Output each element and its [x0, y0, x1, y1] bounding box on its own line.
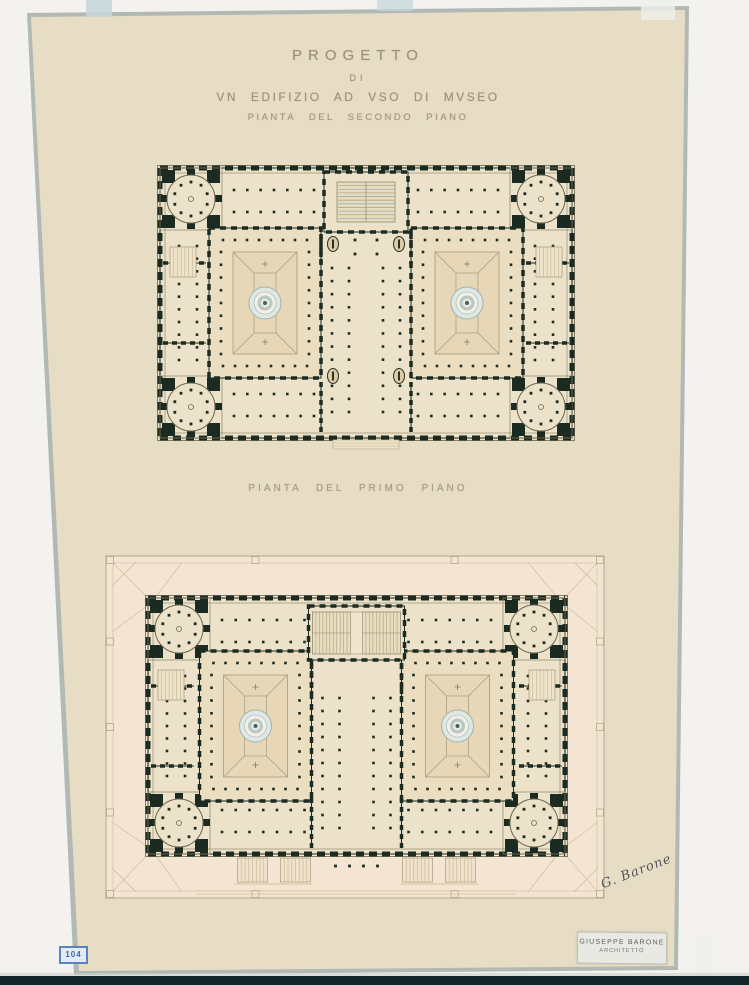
- scanned-architectural-drawing: { "artwork": { "title_line1": "PROGETTO"…: [0, 0, 749, 985]
- plan-primo-piano: [106, 556, 604, 898]
- scan-bottom-bar: [0, 976, 749, 985]
- tape-strip-left: [86, 0, 112, 17]
- scan-edge-line: [0, 973, 749, 976]
- drawing-canvas: [0, 0, 749, 985]
- tape-strip-center: [377, 0, 413, 11]
- tape-strip-right: [641, 0, 675, 20]
- plan-secondo-piano: [158, 166, 575, 450]
